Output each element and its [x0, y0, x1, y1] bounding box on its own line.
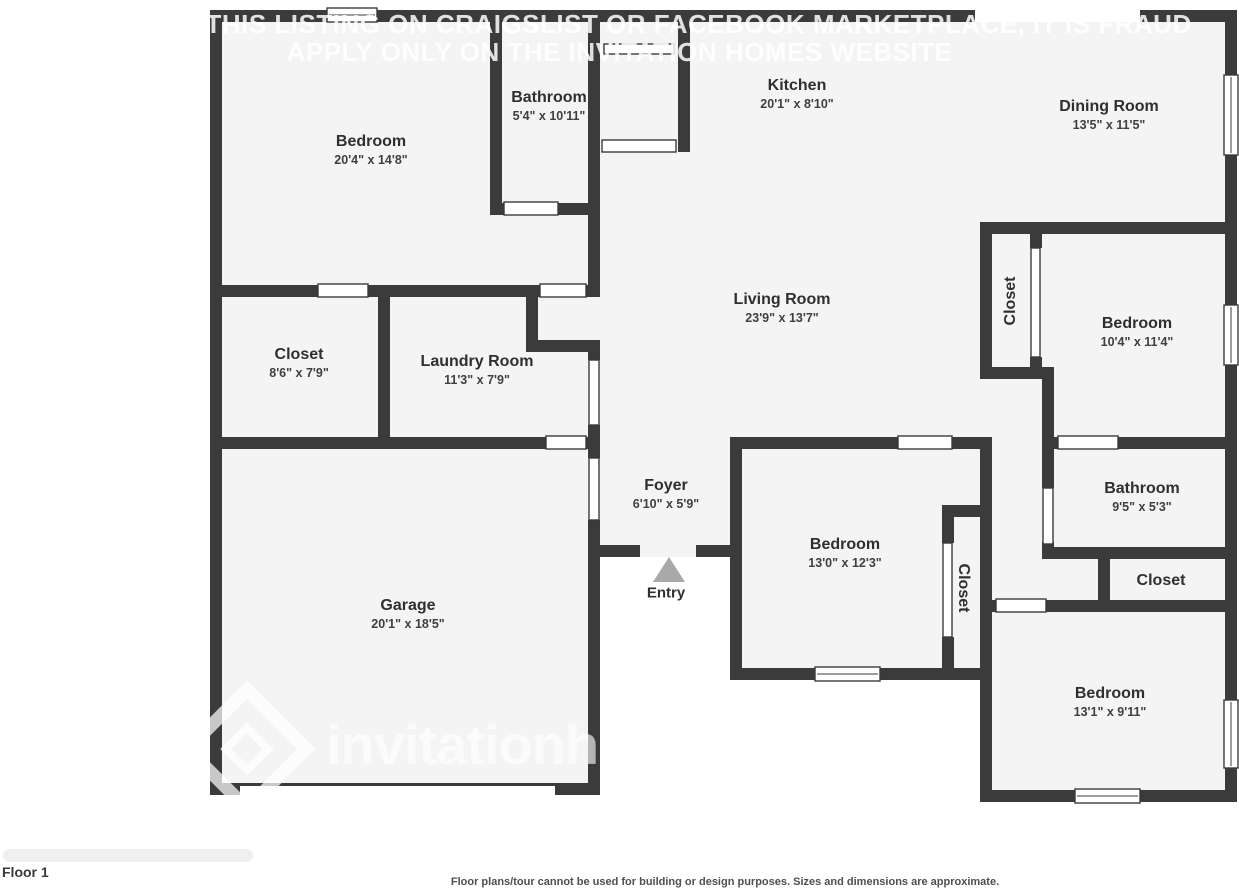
room-label-living-room: Living Room23'9" x 13'7" [734, 290, 831, 326]
room-label-bedroom-right: Bedroom10'4" x 11'4" [1101, 314, 1174, 350]
room-name: Bedroom [1074, 684, 1147, 704]
room-label-foyer: Foyer6'10" x 5'9" [633, 476, 699, 512]
room-label-bedroom-middle: Bedroom13'0" x 12'3" [808, 535, 881, 571]
room-name: Bedroom [808, 535, 881, 555]
floorplan-canvas: IF YOU SEE THIS LISTING ON CRAIGSLIST OR… [0, 0, 1239, 895]
room-dims: 13'5" x 11'5" [1059, 117, 1159, 133]
room-dims: 23'9" x 13'7" [734, 310, 831, 326]
room-dims: 13'1" x 9'11" [1074, 704, 1147, 720]
room-dims: 20'4" x 14'8" [334, 152, 407, 168]
floorplan-drawing [0, 0, 1239, 895]
room-dims: 9'5" x 5'3" [1104, 499, 1180, 515]
room-name: Closet [1137, 571, 1186, 591]
room-label-laundry-room: Laundry Room11'3" x 7'9" [421, 352, 534, 388]
room-dims: 11'3" x 7'9" [421, 372, 534, 388]
room-label-bedroom-bottom-right: Bedroom13'1" x 9'11" [1074, 684, 1147, 720]
room-name: Dining Room [1059, 97, 1159, 117]
entry-arrow-icon [653, 557, 685, 582]
room-name: Laundry Room [421, 352, 534, 372]
room-dims: 20'1" x 8'10" [760, 96, 833, 112]
room-name: Bathroom [1104, 479, 1180, 499]
room-dims: 20'1" x 18'5" [371, 616, 444, 632]
room-dims: 5'4" x 10'11" [511, 108, 587, 124]
room-name: Living Room [734, 290, 831, 310]
room-label-kitchen: Kitchen20'1" x 8'10" [760, 76, 833, 112]
room-dims: 13'0" x 12'3" [808, 555, 881, 571]
entry-label: Entry [647, 585, 685, 602]
room-label-closet-bedroom-middle: Closet [953, 564, 973, 613]
room-dims: 10'4" x 11'4" [1101, 334, 1174, 350]
room-name: Bedroom [334, 132, 407, 152]
disclaimer-text: Floor plans/tour cannot be used for buil… [451, 876, 999, 888]
room-name: Closet [1001, 277, 1021, 326]
room-dims: 6'10" x 5'9" [633, 496, 699, 512]
room-label-closet-master: Closet8'6" x 7'9" [269, 345, 329, 381]
room-name: Bathroom [511, 88, 587, 108]
room-label-bedroom-top-left: Bedroom20'4" x 14'8" [334, 132, 407, 168]
room-name: Bedroom [1101, 314, 1174, 334]
room-dims: 8'6" x 7'9" [269, 365, 329, 381]
room-name: Kitchen [760, 76, 833, 96]
room-label-bathroom-right: Bathroom9'5" x 5'3" [1104, 479, 1180, 515]
room-label-dining-room: Dining Room13'5" x 11'5" [1059, 97, 1159, 133]
room-label-garage: Garage20'1" x 18'5" [371, 596, 444, 632]
room-label-closet-hall: Closet [1137, 571, 1186, 591]
room-name: Closet [953, 564, 973, 613]
room-name: Garage [371, 596, 444, 616]
room-name: Closet [269, 345, 329, 365]
room-name: Foyer [633, 476, 699, 496]
floor-label: Floor 1 [2, 864, 49, 880]
room-label-closet-bedroom-right: Closet [1001, 277, 1021, 326]
floor-selector-bar [3, 849, 253, 862]
room-label-bathroom-top: Bathroom5'4" x 10'11" [511, 88, 587, 124]
